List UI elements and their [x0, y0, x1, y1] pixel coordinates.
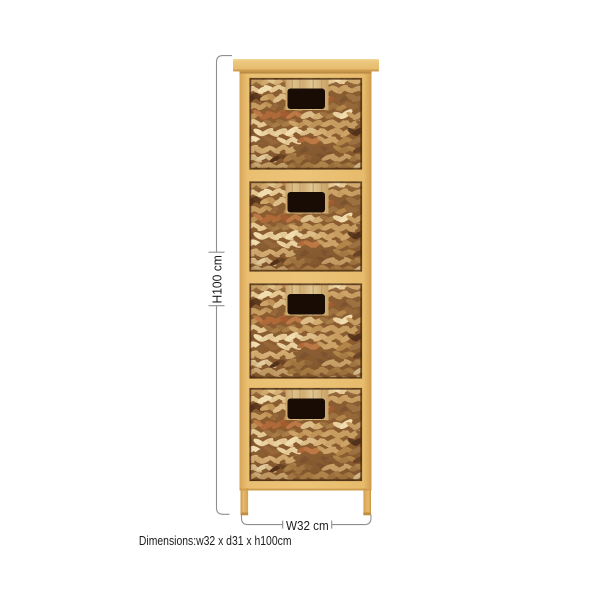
svg-text:W32 cm: W32 cm	[286, 518, 329, 533]
svg-text:H100 cm: H100 cm	[209, 255, 224, 303]
svg-text:Dimensions:w32 x d31 x h100cm: Dimensions:w32 x d31 x h100cm	[139, 533, 292, 548]
